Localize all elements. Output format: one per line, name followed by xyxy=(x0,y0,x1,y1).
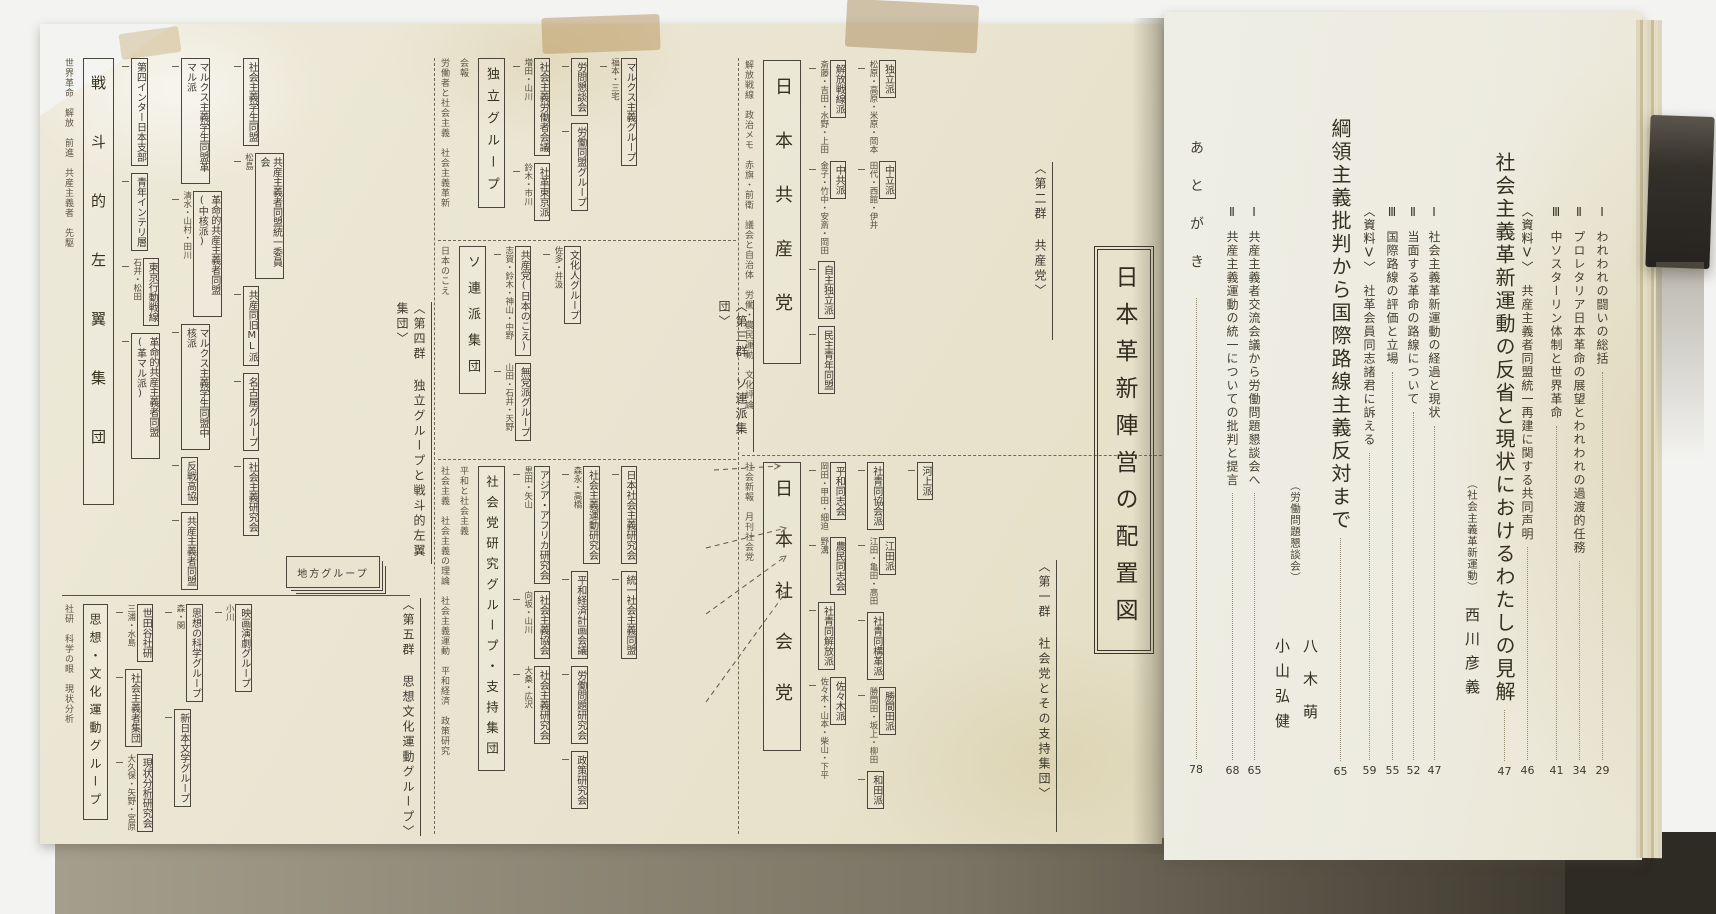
group-label-2: 〈第二群 共産党〉 xyxy=(1032,162,1053,340)
org-box: マルクス主義学生同盟革マル派 xyxy=(181,58,210,184)
publication-label: 社会主義革新 xyxy=(438,148,451,208)
org-entry: 新日本文学グループ xyxy=(165,709,202,807)
org-entry: マルクス主義学生同盟革マル派 xyxy=(172,58,222,184)
org-box: 共産主義者同盟統一委員会 xyxy=(255,153,284,279)
org-entry: 社会主義研究会 xyxy=(234,458,284,536)
member-names: 江田・亀田・高田 xyxy=(867,537,877,605)
publication-label: 平和と社会主義 xyxy=(457,466,470,536)
org-box: 自主独立派 xyxy=(818,261,835,319)
member-names: 増田・山川 xyxy=(522,58,532,101)
org-entry: 名古屋グループ xyxy=(234,373,284,451)
org-box: 佐々木派 xyxy=(830,677,847,725)
org-entry: 民主青年同盟 xyxy=(809,326,846,394)
org-entry: 統一社会主義同盟 xyxy=(612,571,638,659)
org-box: 農民同志会 xyxy=(830,537,847,595)
member-names: 福本・三宅 xyxy=(609,58,619,101)
org-entry: 労働同盟グループ xyxy=(562,123,588,211)
org-main-box: 思想・文化運動グループ xyxy=(83,604,108,820)
page-number: 52 xyxy=(1407,764,1421,777)
org-box: 共産党(日本のこえ) xyxy=(515,246,532,356)
org-box: 思想の科学グループ xyxy=(186,604,203,702)
org-entry: 小川映画演劇グループ xyxy=(215,604,252,692)
faction-boxes: 黒田・矢山アジア・アフリカ研究会向坂・山川社会主義協会大桑・広沢社会主義研究会森… xyxy=(513,466,734,832)
member-names: 向坂・山川 xyxy=(522,591,532,634)
member-names: 森永・高橋 xyxy=(571,466,581,509)
page-number: 55 xyxy=(1386,764,1400,777)
section-culture-movement: 社研科学の眼現状分析 思想・文化運動グループ 三浦・水島世田谷社研社会主義者集団… xyxy=(62,604,408,832)
publication-label: 前進 xyxy=(62,138,75,158)
dotted-leader xyxy=(1434,426,1435,761)
toc-entry: Ⅰ共産主義者交流会議から労働問題懇談会へ 65 xyxy=(1246,205,1263,777)
member-names: 岡田・甲田・細迫 xyxy=(818,462,828,530)
faction-boxes: 第四インター日本支部青年インテリ層石井・松田東京行動戦線革命的共産主義者同盟(革… xyxy=(122,58,408,590)
org-entry: マルクス主義学生同盟中核派 xyxy=(172,324,222,450)
org-entry: 鈴木・市川社革東京派 xyxy=(513,163,550,221)
dotted-leader xyxy=(1579,561,1580,761)
org-entry: 森・関思想の科学グループ xyxy=(165,604,202,702)
author-name: 西川彦義 xyxy=(1462,607,1483,703)
publication-label: 議会と自治体 xyxy=(742,220,755,280)
org-box: 日本社会主義研究会 xyxy=(621,466,638,564)
publication-label: 解放 xyxy=(62,108,75,128)
toc-entry: 〈資料Ⅴ〉社革会員同志諸君に訴える 59 xyxy=(1361,205,1378,777)
org-box: 社会主義研究会 xyxy=(534,666,551,744)
toc-entry: Ⅱ当面する革命の路線について 52 xyxy=(1405,205,1422,777)
org-box: 社青同解放派 xyxy=(818,602,835,670)
member-names: 大桑・広沢 xyxy=(522,666,532,709)
faction-boxes: 三浦・水島世田谷社研社会主義者集団大久保・矢野・宮原現状分析研究会森・関思想の科… xyxy=(116,604,408,832)
org-entry: 清水・山村・田川革命的共産主義者同盟(中核派) xyxy=(172,191,222,317)
org-entry: 平和経済計画会議 xyxy=(562,571,599,659)
toc-entry: Ⅲ国際路線の評価と立場 55 xyxy=(1384,205,1401,777)
org-entry: 増田・山川社会主義労働者会議 xyxy=(513,58,550,156)
dotted-leader xyxy=(1196,298,1197,759)
org-box: 社会主義者集団 xyxy=(125,669,142,747)
page-number: 41 xyxy=(1550,764,1564,777)
publications-column: 日本のこえ xyxy=(438,246,451,452)
page-number: 68 xyxy=(1226,764,1240,777)
org-box: 社会主義労働者会議 xyxy=(534,58,551,156)
toc-afterword: あとがき 78 xyxy=(1186,140,1206,776)
org-box: 映画演劇グループ xyxy=(235,604,252,692)
member-names: 佐々木・山本・柴山・下平 xyxy=(818,677,828,779)
org-box: 解放戦線派 xyxy=(830,60,847,118)
page-number: 47 xyxy=(1428,764,1442,777)
org-box: 和田派 xyxy=(867,771,884,809)
org-entry: 大桑・広沢社会主義研究会 xyxy=(513,666,550,744)
org-box: 中立派 xyxy=(879,161,896,199)
publication-label: 会報 xyxy=(457,58,470,78)
publication-label: 社会新報 xyxy=(742,462,755,502)
publication-label: 科学の眼 xyxy=(62,634,75,674)
member-names: 佐多・井汲 xyxy=(552,246,562,289)
publication-label: 月刊社会党 xyxy=(742,512,755,562)
org-main-box: 社会党研究グループ・支持集団 xyxy=(478,466,505,771)
member-names: 勝間田・坂上・柳田 xyxy=(867,687,877,764)
publication-label: 世界革命 xyxy=(62,58,75,98)
org-box: 社青同協会派 xyxy=(867,462,884,530)
member-names: 大久保・矢野・宮原 xyxy=(125,754,135,831)
binder-clip xyxy=(1645,115,1714,269)
section-communist-party: 解放戦線政治メモ赤旗・前衛議会と自治体労働・農民運動文化評論 日本共産党 斎藤・… xyxy=(742,60,1028,452)
member-names: 金子・竹中・安斎・岡田 xyxy=(818,161,828,255)
org-box: 江田派 xyxy=(879,537,896,575)
org-entry: 福本・三宅マルクス主義グループ xyxy=(600,58,637,166)
publication-label: 赤旗・前衛 xyxy=(742,160,755,210)
org-entry: 山田・石井・天野無党派グループ xyxy=(494,363,531,441)
page-number: 78 xyxy=(1189,763,1203,776)
dotted-leader xyxy=(1527,547,1528,760)
org-entry: 自主独立派 xyxy=(809,261,846,319)
section-research-support-groups: 社会主義社会主義の理論社会主義運動平和経済政策研究平和と社会主義 社会党研究グル… xyxy=(438,466,734,832)
page-number: 65 xyxy=(1248,764,1262,777)
org-entry: 野溝農民同志会 xyxy=(809,537,846,595)
org-box: 東京行動戦線 xyxy=(143,258,160,326)
member-names: 黒田・矢山 xyxy=(522,466,532,509)
org-box: 新日本文学グループ xyxy=(174,709,191,807)
faction-boxes: 志賀・鈴木・神山・中野共産党(日本のこえ)山田・石井・天野無党派グループ佐多・井… xyxy=(494,246,734,452)
org-entry: 青年インテリ層 xyxy=(122,173,160,251)
org-entry: 社会主義者集団 xyxy=(116,669,153,747)
org-box: 現状分析研究会 xyxy=(137,754,154,832)
publication-label: 社会主義の理論 xyxy=(438,516,451,586)
org-box: 中共派 xyxy=(830,161,847,199)
dotted-leader xyxy=(1504,710,1505,761)
chart-divider xyxy=(62,595,410,596)
publication-label: 文化評論 xyxy=(742,370,755,410)
org-box: 青年インテリ層 xyxy=(131,173,148,251)
org-box: 社会主義学生同盟 xyxy=(243,58,260,146)
org-box: 世田谷社研 xyxy=(137,604,154,662)
org-entry: 社青同協会派 xyxy=(858,462,895,530)
org-entry: 向坂・山川社会主義協会 xyxy=(513,591,550,659)
org-main-box: 日本社会党 xyxy=(763,462,801,751)
publication-label: 解放戦線 xyxy=(742,60,755,100)
org-entry: 松原・高原・米原・岡本独立派 xyxy=(858,60,895,154)
org-entry: 金子・竹中・安斎・岡田中共派 xyxy=(809,161,846,255)
faction-boxes: 増田・山川社会主義労働者会議鈴木・市川社革東京派労問懇談会労働同盟グループ福本・… xyxy=(513,58,734,236)
org-box: 労働同盟グループ xyxy=(571,123,588,211)
chart-divider xyxy=(438,459,736,460)
org-box: 無党派グループ xyxy=(515,363,532,441)
faction-boxes: 斎藤・吉田・水野・上田解放戦線派金子・竹中・安斎・岡田中共派自主独立派民主青年同… xyxy=(809,60,1028,452)
publication-label: 政策研究 xyxy=(438,716,451,756)
org-box: 統一社会主義同盟 xyxy=(621,571,638,659)
member-names: 森・関 xyxy=(174,604,184,630)
author-name: 小山弘健 xyxy=(1272,638,1293,738)
member-names: 松原・高原・米原・岡本 xyxy=(867,60,877,154)
member-names: 清水・山村・田川 xyxy=(181,191,191,259)
toc-article-title: 綱領主義批判から国際路線主義反対まで 65 xyxy=(1326,118,1355,778)
publication-label: 現状分析 xyxy=(62,684,75,724)
org-entry: 革命的共産主義者同盟(革マル派) xyxy=(122,333,160,459)
toc-entry: Ⅲ中ソスターリン体制と世界革命 41 xyxy=(1548,205,1565,777)
dotted-leader xyxy=(1340,538,1341,761)
section-socialist-party: 社会新報月刊社会党 日本社会党 岡田・甲田・細迫平和同志会野溝農民同志会社青同解… xyxy=(742,462,1072,834)
org-entry: 河上派 xyxy=(908,462,934,500)
org-box: マルクス主義学生同盟中核派 xyxy=(181,324,210,450)
publications-column: 解放戦線政治メモ赤旗・前衛議会と自治体労働・農民運動文化評論 xyxy=(742,60,755,452)
member-names: 松島 xyxy=(243,153,253,170)
page-number: 65 xyxy=(1334,765,1348,778)
page-number: 59 xyxy=(1363,764,1377,777)
publication-label: 共産主義者 xyxy=(62,168,75,218)
tape-stain xyxy=(845,0,979,53)
faction-boxes: 岡田・甲田・細迫平和同志会野溝農民同志会社青同解放派佐々木・山本・柴山・下平佐々… xyxy=(809,462,1072,834)
publications-column: 社会新報月刊社会党 xyxy=(742,462,755,834)
org-entry: 志賀・鈴木・神山・中野共産党(日本のこえ) xyxy=(494,246,531,356)
org-entry: 岡田・甲田・細迫平和同志会 xyxy=(809,462,846,530)
toc-entry: Ⅰわれわれの闘いの総括 29 xyxy=(1594,205,1611,777)
dotted-leader xyxy=(1556,426,1557,761)
org-box: 民主青年同盟 xyxy=(818,326,835,394)
dotted-leader xyxy=(1369,453,1370,761)
dotted-leader xyxy=(1413,412,1414,760)
org-box: 社会主義研究会 xyxy=(243,458,260,536)
org-box: 勝間田派 xyxy=(879,687,896,735)
publications-column: 社研科学の眼現状分析 xyxy=(62,604,75,832)
org-box: 共産主義者同盟 xyxy=(181,512,198,590)
dotted-leader xyxy=(1602,372,1603,761)
toc-article-credit: 八木萌 xyxy=(1300,638,1321,737)
member-names: 志賀・鈴木・神山・中野 xyxy=(503,246,513,340)
org-entry: 第四インター日本支部 xyxy=(122,58,160,166)
org-entry: 政策研究会 xyxy=(562,751,599,809)
toc-entry: 〈資料Ⅴ〉共産主義者同盟統一再建に関する共同声明 46 xyxy=(1519,205,1536,777)
org-entry: 黒田・矢山アジア・アフリカ研究会 xyxy=(513,466,550,584)
toc-entry: Ⅱ共産主義運動の統一についての批判と提言 68 xyxy=(1224,205,1241,777)
org-box: 政策研究会 xyxy=(571,751,588,809)
dotted-leader xyxy=(1254,493,1255,760)
tape-stain xyxy=(541,14,660,54)
org-box: 共産同旧ML派 xyxy=(243,286,260,366)
page-number: 47 xyxy=(1498,765,1512,778)
regional-groups-stacked-box: 地方グループ xyxy=(286,556,380,588)
org-box: 社革東京派 xyxy=(534,163,551,221)
member-names: 斎藤・吉田・水野・上田 xyxy=(818,60,828,154)
chart-divider xyxy=(438,240,736,241)
org-entry: 江田・亀田・高田江田派 xyxy=(858,537,895,605)
member-names: 三浦・水島 xyxy=(125,604,135,647)
publications-column: 世界革命解放前進共産主義者先駆 xyxy=(62,58,75,590)
org-box: マルクス主義グループ xyxy=(621,58,638,166)
org-entry: 石井・松田東京行動戦線 xyxy=(122,258,160,326)
org-box: 革命的共産主義者同盟(中核派) xyxy=(193,191,222,317)
section-soviet-faction: 日本のこえ ソ連派集団 志賀・鈴木・神山・中野共産党(日本のこえ)山田・石井・天… xyxy=(438,246,734,452)
org-box: 反戦高協 xyxy=(181,457,198,505)
org-entry: 三浦・水島世田谷社研 xyxy=(116,604,153,662)
org-box: 革命的共産主義者同盟(革マル派) xyxy=(131,333,160,459)
org-entry: 労働問題研究会 xyxy=(562,666,599,744)
toc-article-credit: （労働問題懇談会） xyxy=(1288,480,1303,584)
photo-of-open-pamphlet: 日本革新陣営の配置図 〈第一群 社会党とその支持集団〉 〈第二群 共産党〉 〈第… xyxy=(0,0,1716,914)
org-entry: 社会主義学生同盟 xyxy=(234,58,284,146)
toc-article-credit: （社会主義革新運動） 西川彦義 xyxy=(1462,478,1483,703)
org-main-box: ソ連派集団 xyxy=(459,246,486,394)
org-box: 社青同構革派 xyxy=(867,612,884,680)
org-entry: 松島共産主義者同盟統一委員会 xyxy=(234,153,284,279)
org-entry: 共産主義者同盟 xyxy=(172,512,222,590)
org-main-box: 戦斗的左翼集団 xyxy=(83,58,114,505)
org-entry: 共産同旧ML派 xyxy=(234,286,284,366)
toc-entry: Ⅱプロレタリア日本革命の展望とわれわれの過渡的任務 34 xyxy=(1571,205,1588,777)
org-entry: 佐多・井汲文化人グループ xyxy=(543,246,580,324)
publication-label: 日本のこえ xyxy=(438,246,451,296)
dotted-leader xyxy=(1392,372,1393,761)
org-box: 社会主義運動研究会 xyxy=(583,466,600,564)
org-entry: 田代・西館・伊井中立派 xyxy=(858,161,895,229)
page-number: 34 xyxy=(1573,764,1587,777)
org-box: 独立派 xyxy=(879,60,896,98)
author-name: 八木萌 xyxy=(1300,638,1321,737)
org-main-box: 独立グループ xyxy=(478,58,505,208)
publications-column: 社会主義社会主義の理論社会主義運動平和経済政策研究平和と社会主義 xyxy=(438,466,470,832)
org-main-box: 日本共産党 xyxy=(763,60,801,364)
org-entry: 社青同構革派 xyxy=(858,612,895,680)
org-box: 第四インター日本支部 xyxy=(131,58,148,166)
org-box: アジア・アフリカ研究会 xyxy=(534,466,551,584)
org-box: 労働問題研究会 xyxy=(571,666,588,744)
toc-article-title: 社会主義革新運動の反省と現状におけるわたしの見解 47 xyxy=(1490,152,1519,778)
org-entry: 大久保・矢野・宮原現状分析研究会 xyxy=(116,754,153,832)
org-box: 社会主義協会 xyxy=(534,591,551,659)
publications-column: 労働者と社会主義社会主義革新会報 xyxy=(438,58,470,236)
member-names: 山田・石井・天野 xyxy=(503,363,513,431)
page-number: 46 xyxy=(1521,764,1535,777)
publication-label: 社会主義 xyxy=(438,466,451,506)
member-names: 鈴木・市川 xyxy=(522,163,532,206)
toc-article-credit: 小山弘健 xyxy=(1272,638,1293,738)
publication-label: 政治メモ xyxy=(742,110,755,150)
section-independent-group: 労働者と社会主義社会主義革新会報 独立グループ 増田・山川社会主義労働者会議鈴木… xyxy=(438,58,734,236)
org-entry: 森永・高橋社会主義運動研究会 xyxy=(562,466,599,564)
publication-label: 平和経済 xyxy=(438,666,451,706)
org-entry: 和田派 xyxy=(858,771,895,809)
toc-entry: Ⅰ社会主義革新運動の経過と現状 47 xyxy=(1426,205,1443,777)
org-entry: 佐々木・山本・柴山・下平佐々木派 xyxy=(809,677,846,779)
member-names: 野溝 xyxy=(818,537,828,554)
org-box: 平和同志会 xyxy=(830,462,847,520)
section-militant-left: 世界革命解放前進共産主義者先駆 戦斗的左翼集団 第四インター日本支部青年インテリ… xyxy=(62,58,408,590)
org-entry: 社青同解放派 xyxy=(809,602,846,670)
org-box: 名古屋グループ xyxy=(243,373,260,451)
org-box: 文化人グループ xyxy=(564,246,581,324)
org-entry: 反戦高協 xyxy=(172,457,222,505)
dotted-leader xyxy=(1232,493,1233,760)
publication-label: 労働者と社会主義 xyxy=(438,58,451,138)
org-entry: 勝間田・坂上・柳田勝間田派 xyxy=(858,687,895,764)
page-number: 29 xyxy=(1596,764,1610,777)
org-box: 平和経済計画会議 xyxy=(571,571,588,659)
member-names: 石井・松田 xyxy=(131,258,141,301)
org-box: 労問懇談会 xyxy=(571,58,588,116)
org-entry: 日本社会主義研究会 xyxy=(612,466,638,564)
member-names: 田代・西館・伊井 xyxy=(867,161,877,229)
publication-label: 社会主義運動 xyxy=(438,596,451,656)
chart-divider xyxy=(434,58,435,834)
org-entry: 労問懇談会 xyxy=(562,58,588,116)
publication-label: 先駆 xyxy=(62,228,75,248)
publication-label: 社研 xyxy=(62,604,75,624)
org-entry: 斎藤・吉田・水野・上田解放戦線派 xyxy=(809,60,846,154)
publication-label: 労働・農民運動 xyxy=(742,290,755,360)
member-names: 小川 xyxy=(224,604,234,621)
binder-clip-shadow xyxy=(1656,262,1704,462)
org-box: 河上派 xyxy=(917,462,934,500)
